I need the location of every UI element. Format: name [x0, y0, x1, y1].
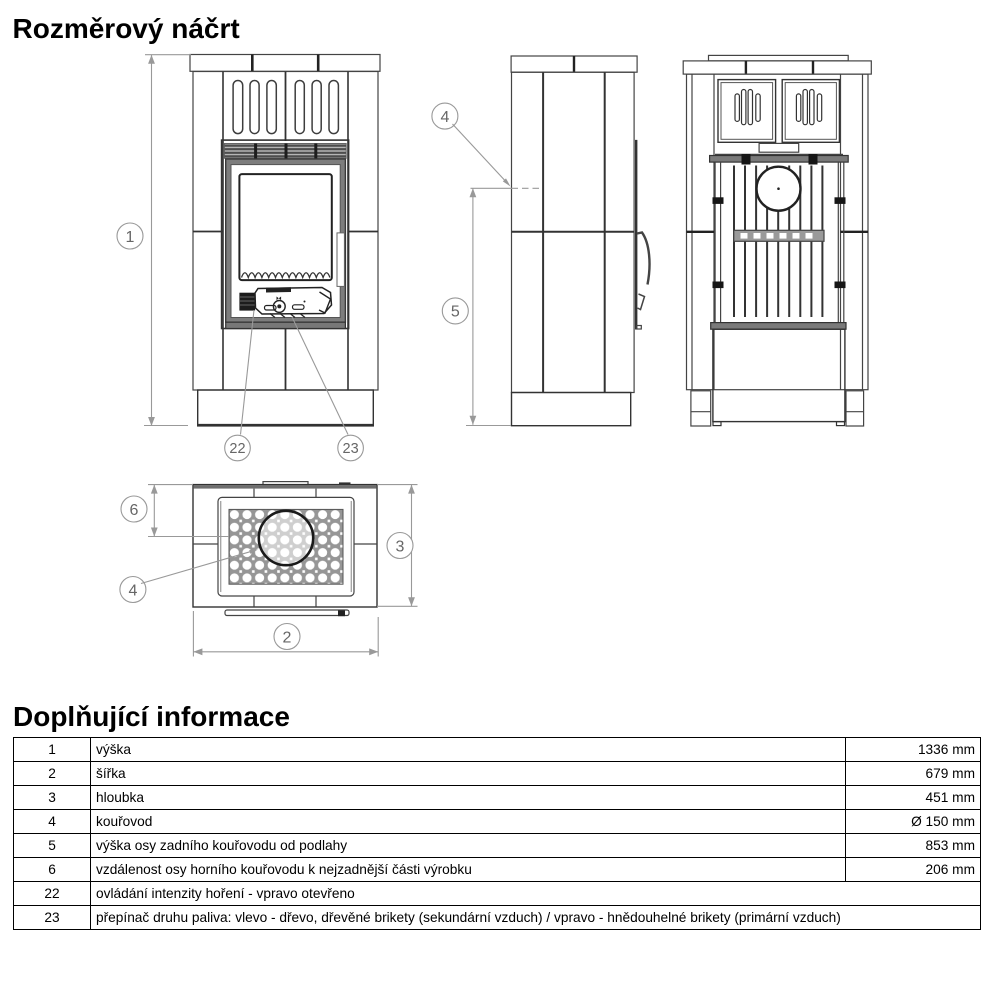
svg-text:4: 4	[128, 582, 137, 599]
svg-text:1: 1	[126, 229, 135, 246]
svg-text:23: 23	[343, 441, 359, 457]
svg-text:6: 6	[130, 502, 139, 519]
svg-text:3: 3	[396, 538, 405, 555]
svg-text:22: 22	[229, 441, 245, 457]
svg-text:5: 5	[451, 304, 460, 321]
svg-text:2: 2	[283, 629, 292, 646]
svg-text:4: 4	[440, 109, 449, 126]
